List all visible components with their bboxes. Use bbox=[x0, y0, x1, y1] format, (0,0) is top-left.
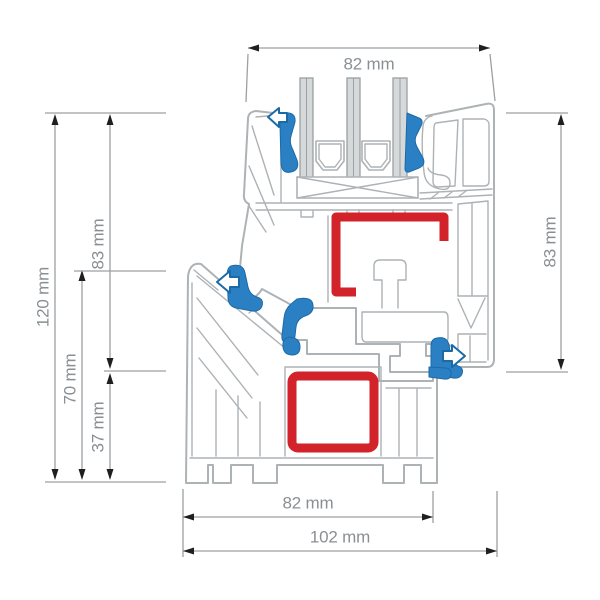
glazing-unit bbox=[297, 78, 418, 198]
glass-spacer bbox=[362, 141, 390, 170]
frame-profile bbox=[186, 264, 437, 483]
dimension-label-left-total-height: 120 mm bbox=[35, 267, 52, 327]
sash-steel-reinforcement bbox=[336, 217, 444, 292]
gasket-frame-right-foot bbox=[429, 367, 451, 379]
gasket-sash-nose bbox=[227, 265, 262, 311]
window-profile-cross-section: 82 mm 83 mm 120 mm 83 mm 70 mm 37 mm 82 … bbox=[0, 0, 600, 600]
dimension-label-left-bottom-height: 37 mm bbox=[90, 402, 107, 453]
dimension-label-right-sash-height: 83 mm bbox=[542, 217, 559, 268]
gasket-glass-right bbox=[405, 113, 424, 172]
dimension-label-left-sash-height: 83 mm bbox=[90, 219, 107, 270]
dimension-label-bottom-frame-width: 82 mm bbox=[283, 495, 334, 512]
glass-spacer bbox=[316, 141, 344, 170]
frame-steel-reinforcement bbox=[292, 376, 374, 448]
dimension-label-top-width: 82 mm bbox=[344, 56, 395, 73]
dimension-label-bottom-total-width: 102 mm bbox=[310, 529, 370, 546]
gasket-center-seal bbox=[282, 298, 313, 343]
gasket-center-seal-foot bbox=[283, 337, 300, 355]
dimension-label-left-frame-height: 70 mm bbox=[62, 354, 79, 405]
